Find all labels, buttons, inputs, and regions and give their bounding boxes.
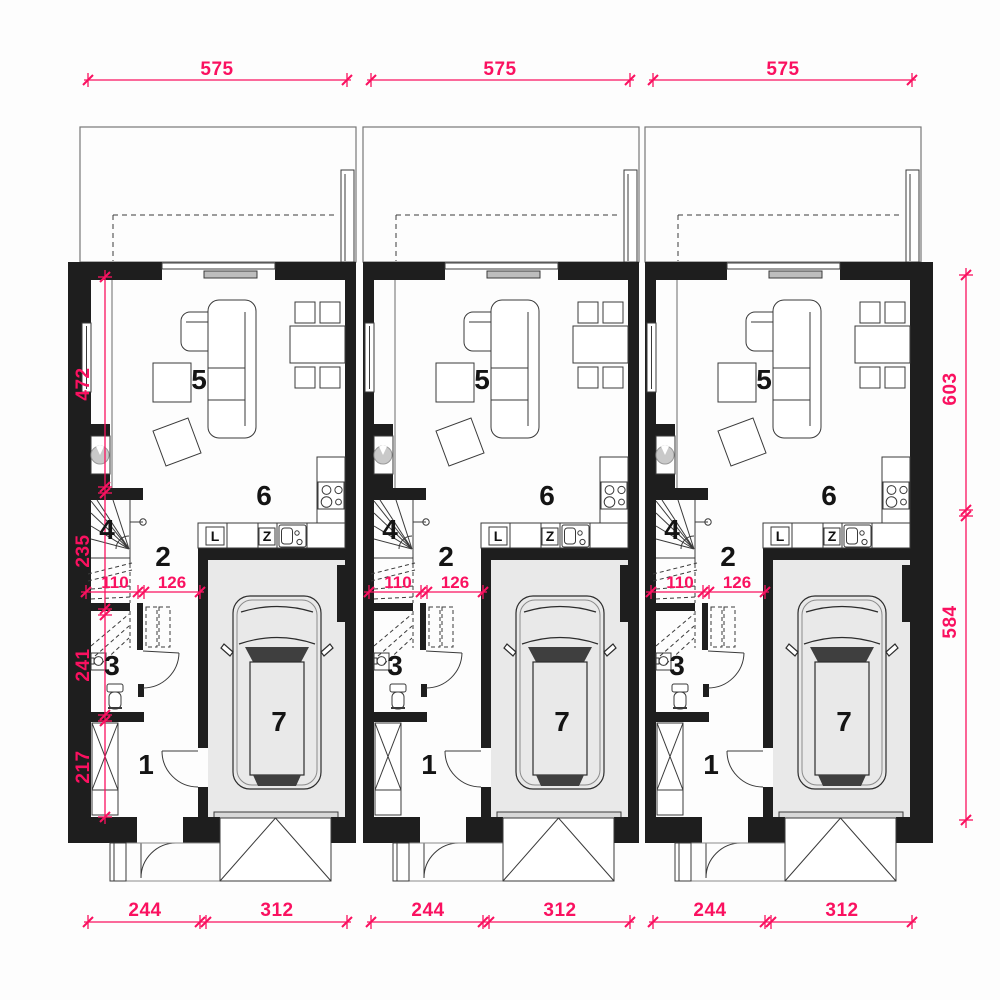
left-gable-wall bbox=[68, 262, 80, 843]
unit-3-plan bbox=[645, 73, 921, 929]
right-gable-wall bbox=[921, 262, 933, 843]
unit-2-plan bbox=[363, 73, 639, 929]
floor-plan-canvas: 575 575 575 244 312 244 312 244 312 472 … bbox=[0, 0, 1000, 1000]
floor-plan-drawing bbox=[0, 0, 1000, 1000]
right-dimension-line bbox=[959, 268, 973, 828]
unit-1-plan bbox=[80, 73, 356, 929]
